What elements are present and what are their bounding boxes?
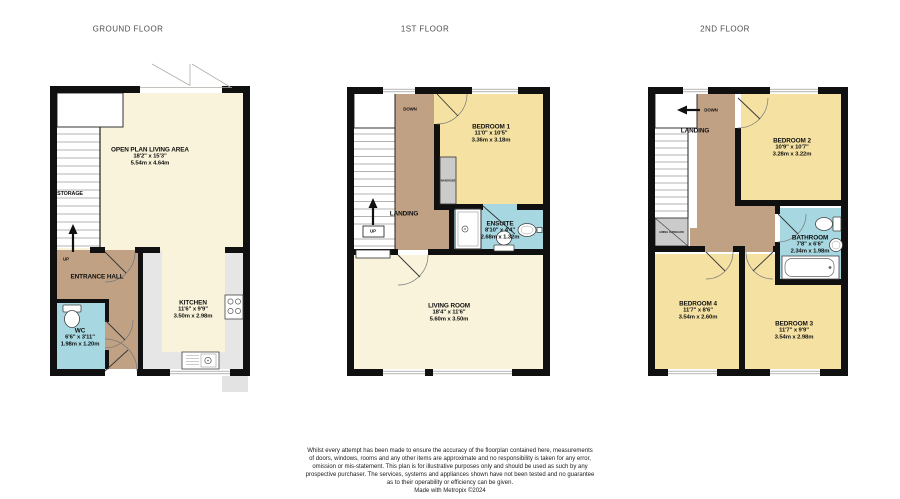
room-name: LIVING ROOM [428,303,470,310]
staircase [655,93,697,228]
disclaimer-line: as to their operability or efficiency ca… [0,480,900,488]
up-label: UP [370,229,376,234]
room-dims-m: 3.36m x 3.18m [472,138,511,145]
bathtub-icon [782,256,839,279]
room-label-wc: WC 6'6" x 3'11" 1.98m x 1.20m [61,328,100,349]
second-floor-plan: AIRING CUPBOARD [642,82,854,380]
room-dims-m: 2.68m x 1.32m [481,235,520,242]
ground-floor-title: GROUND FLOOR [93,25,164,34]
room-name: BEDROOM 4 [679,301,718,308]
room-label-ensuite: ENSUITE 8'10" x 4'4" 2.68m x 1.32m [481,221,520,242]
understairs-cupboard [356,250,390,258]
room-label-bedroom4: BEDROOM 4 11'7" x 8'6" 3.54m x 2.60m [679,301,718,322]
airing-cupboard-label: AIRING CUPBOARD [659,230,684,234]
floorplan-page: WARDROBE [0,0,900,499]
bifold-door-icon [140,64,232,88]
room-dims-ft: 10'9" x 10'7" [773,145,812,152]
shower-icon [455,209,481,249]
wardrobe: WARDROBE [440,157,456,204]
room-label-entrance-hall: ENTRANCE HALL [70,274,123,281]
up-label: UP [63,257,69,262]
room-dims-ft: 6'6" x 3'11" [61,335,100,342]
room-name: OPEN PLAN LIVING AREA [111,147,189,154]
room-dims-m: 1.98m x 1.20m [61,342,100,349]
room-dims-m: 3.50m x 2.98m [174,314,213,321]
room-name: KITCHEN [174,300,213,307]
window [170,369,230,376]
room-dims-m: 3.54m x 2.60m [679,315,718,322]
room-dims-ft: 11'7" x 8'6" [679,308,718,315]
room-dims-ft: 18'2" x 15'3" [111,154,189,161]
first-floor-title: 1ST FLOOR [401,25,449,34]
room-name: BATHROOM [791,235,830,242]
down-label: DOWN [403,107,417,112]
washbasin-icon [830,239,843,252]
disclaimer-line: omission or mis-statement. This plan is … [0,464,900,472]
toilet-icon [63,305,81,328]
room-dims-ft: 7'8" x 6'6" [791,242,830,249]
disclaimer-line: of doors, windows, rooms and any other i… [0,456,900,464]
room-label-bedroom1: BEDROOM 1 11'0" x 10'5" 3.36m x 3.18m [472,124,511,145]
room-dims-ft: 8'10" x 4'4" [481,228,520,235]
room-label-bedroom2: BEDROOM 2 10'9" x 10'7" 3.28m x 3.22m [773,138,812,159]
room-label-landing: LANDING [390,211,418,218]
sink-icon [182,352,219,369]
down-label: DOWN [704,108,718,113]
room-label-open-plan-living-area: OPEN PLAN LIVING AREA 18'2" x 15'3" 5.54… [111,147,189,168]
porch-step [222,376,248,392]
room-label-bathroom: BATHROOM 7'8" x 6'6" 2.34m x 1.98m [791,235,830,256]
room-dims-ft: 11'7" x 9'9" [775,328,814,335]
staircase [354,93,395,250]
room-name: ENSUITE [481,221,520,228]
room-name: BEDROOM 2 [773,138,812,145]
storage-label: STORAGE [57,191,83,197]
room-label-landing: LANDING [681,128,709,135]
disclaimer-line: prospective purchaser. The services, sys… [0,472,900,480]
room-dims-ft: 11'6" x 9'9" [174,307,213,314]
room-dims-m: 5.54m x 4.64m [111,161,189,168]
disclaimer-text: Whilst every attempt has been made to en… [0,448,900,496]
room-dims-m: 2.34m x 1.98m [791,249,830,256]
room-label-kitchen: KITCHEN 11'6" x 9'9" 3.50m x 2.98m [174,300,213,321]
room-label-bedroom3: BEDROOM 3 11'7" x 9'9" 3.54m x 2.98m [775,321,814,342]
room-dims-m: 3.54m x 2.98m [775,335,814,342]
room-label-living-room: LIVING ROOM 18'4" x 11'6" 5.60m x 3.50m [428,303,470,324]
room-name: BEDROOM 3 [775,321,814,328]
credit-text: Made with Metropix ©2024 [0,488,900,496]
room-dims-ft: 18'4" x 11'6" [428,310,470,317]
second-floor-title: 2ND FLOOR [700,25,750,34]
room-name: WC [61,328,100,335]
wardrobe-label: WARDROBE [441,180,456,183]
stove-icon [225,295,243,319]
room-dims-ft: 11'0" x 10'5" [472,131,511,138]
room-dims-m: 5.60m x 3.50m [428,317,470,324]
disclaimer-line: Whilst every attempt has been made to en… [0,448,900,456]
toilet-icon [816,217,842,231]
room-name: BEDROOM 1 [472,124,511,131]
room-dims-m: 3.28m x 3.22m [773,152,812,159]
airing-cupboard: AIRING CUPBOARD [655,218,688,246]
